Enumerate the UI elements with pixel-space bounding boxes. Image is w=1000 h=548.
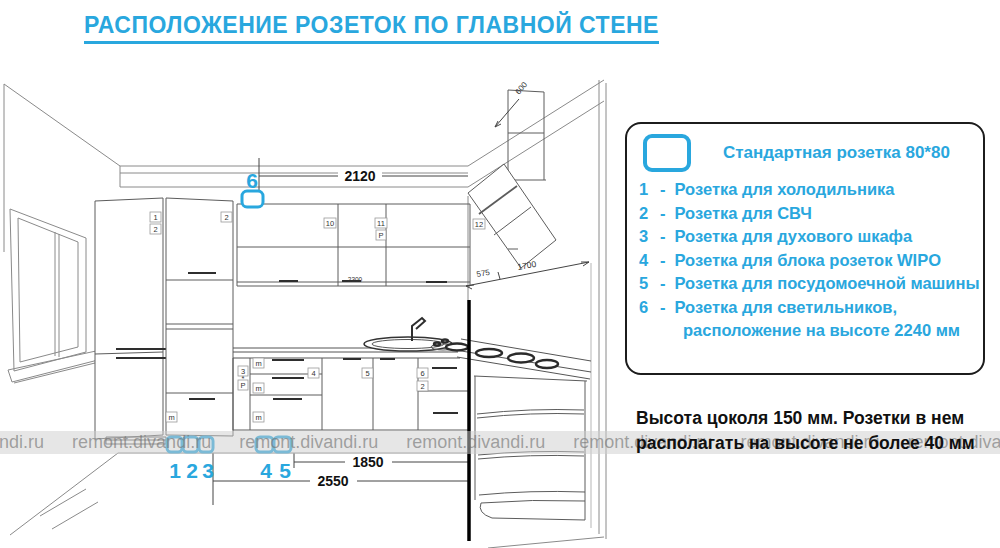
legend-item-dash: - [660,272,666,296]
legend-item-num: 5 [639,272,654,296]
legend-item-6-line2: расположение на высоте 2240 мм [683,319,983,343]
marker-number-4: 4 [260,459,272,482]
legend-item-text: Розетка для холодильника [675,178,895,202]
outlet-marker-1 [167,437,182,452]
cab-label: 11 [377,219,385,228]
marker-number-2: 2 [186,459,198,482]
dim-2120: 2120 [344,168,375,184]
cab-label: 12 [475,220,483,229]
dim-2300: 2300 [348,276,363,283]
legend-item-num: 1 [639,178,654,202]
outlet-marker-3 [199,437,213,452]
legend-item-2: 2 - Розетка для СВЧ [639,202,983,226]
plinth-note-line1: Высота цоколя 150 мм. Розетки в нем [636,406,998,431]
plinth-note: Высота цоколя 150 мм. Розетки в нем расп… [636,406,998,456]
outlet-marker-6 [242,191,263,207]
legend-item-dash: - [660,202,666,226]
legend-item-6: 6 - Розетка для светильников, [639,296,983,320]
cab-label: m [255,359,261,368]
cab-label: 2 [420,382,424,391]
countertop [233,318,591,379]
marker-number-1: 1 [169,459,181,482]
cab-label: m [255,413,261,422]
cab-label: 4 [311,369,315,378]
legend-item-dash: - [660,249,666,273]
dim-1850: 1850 [352,454,383,470]
cab-label: P [240,381,245,390]
marker-number-6: 6 [246,169,258,192]
plinth-note-line2: располагать на высоте не более 40 мм [636,431,998,456]
legend-item-text: Розетка для духового шкафа [675,225,913,249]
legend-item-text: Розетка для посудомоечной машины [675,272,980,296]
marker-number-3: 3 [202,459,214,482]
legend-item-dash: - [660,225,666,249]
cab-label: 10 [326,219,334,228]
room-walls [4,80,606,548]
dim-600: 600 [514,80,530,96]
cab-label: 5 [365,369,369,378]
dim-2550: 2550 [317,473,348,489]
legend-item-text: Розетка для СВЧ [675,202,812,226]
cab-label: m [168,413,174,422]
wall-cabinets [237,204,470,286]
outlet-marker-4 [256,437,273,452]
legend-header-label: Стандартная розетка 80*80 [723,143,950,163]
legend-item-dash: - [660,178,666,202]
cab-label: 1 [153,213,157,222]
cab-label: 6 [420,369,424,378]
dim-1700: 1700 [517,259,538,272]
base-cabinets [233,358,470,430]
legend-item-num: 6 [639,296,654,320]
legend-item-num: 4 [639,249,654,273]
legend-item-dash: - [660,296,666,320]
legend-item-4: 4 - Розетка для блока розеток WIPO [639,249,983,273]
outlet-marker-2 [183,437,198,452]
marker-number-5: 5 [279,459,291,482]
cab-label: 2 [224,213,228,222]
cab-label: 2 [153,225,157,234]
legend-box: Стандартная розетка 80*80 1 - Розетка дл… [625,122,985,375]
legend-item-5: 5 - Розетка для посудомоечной машины [639,272,983,296]
dim-575: 575 [476,268,491,279]
legend-item-text: Розетка для светильников, [675,296,898,320]
cab-label: P [378,231,383,240]
screenshot-root: 2120 1850 2550 2300 600 575 1700 [0,0,1000,548]
tall-cabinets [95,198,233,444]
legend-item-num: 3 [639,225,654,249]
corner-shelf-unit [474,376,587,520]
outlet-marker-5 [274,437,291,452]
oven-column [166,198,233,436]
legend-item-3: 3 - Розетка для духового шкафа [639,225,983,249]
legend-items: 1 - Розетка для холодильника 2 - Розетка… [639,178,983,343]
cab-label: m [255,384,261,393]
page-title: РАСПОЛОЖЕНИЕ РОЗЕТОК ПО ГЛАВНОЙ СТЕНЕ [84,12,659,44]
legend-item-1: 1 - Розетка для холодильника [639,178,983,202]
hood-duct [508,90,546,180]
legend-item-text: Розетка для блока розеток WIPO [675,249,941,273]
legend-header-row: Стандартная розетка 80*80 [639,134,983,172]
legend-item-num: 2 [639,202,654,226]
outlet-icon [643,134,691,172]
window [8,209,99,383]
